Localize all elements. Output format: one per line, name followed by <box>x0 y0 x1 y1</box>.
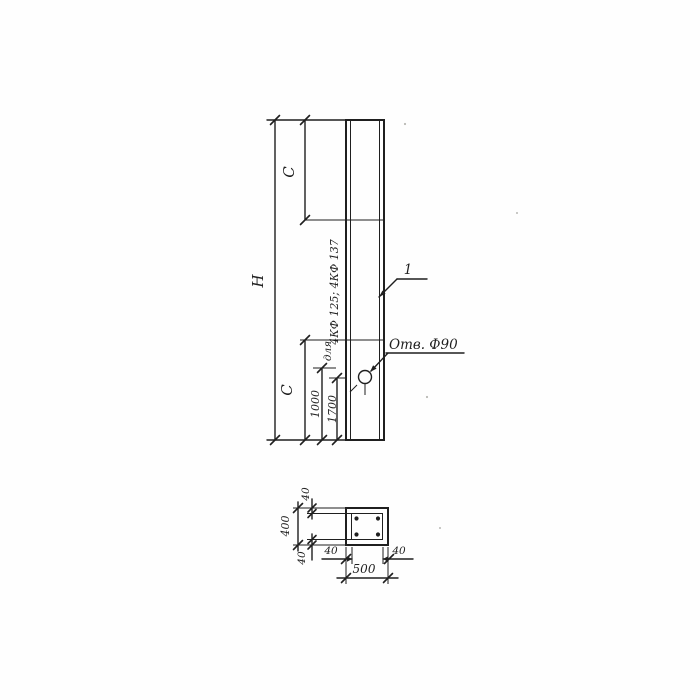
hole-circle <box>359 371 372 384</box>
hole-leader-tail <box>350 385 357 392</box>
rebar-dot <box>376 532 380 536</box>
rebar-dot <box>354 532 358 536</box>
technical-drawing-canvas: H C C 1000 1700 для 4КФ 125; 4КФ 137 <box>0 0 700 700</box>
scan-speck <box>439 527 441 529</box>
dim-1000-label: 1000 <box>309 390 322 418</box>
hole-callout-label: Отв. Ф90 <box>389 337 458 353</box>
section-cover-right-label: 40 <box>391 545 406 557</box>
part-callout-label: 1 <box>404 262 413 278</box>
section-height-label: 400 <box>279 516 292 538</box>
c-top-dimension-label: C <box>280 166 298 178</box>
rebar-dot <box>354 516 358 520</box>
dim-1700-label: 1700 <box>326 395 339 423</box>
c-bottom-dimension-label: C <box>278 384 296 396</box>
elevation-view: H C C 1000 1700 для 4КФ 125; 4КФ 137 <box>249 116 464 445</box>
section-cover-left-label: 40 <box>323 545 338 557</box>
applicability-series-label: 4КФ 125; 4КФ 137 <box>328 239 341 345</box>
dim-arrowhead <box>347 556 352 562</box>
height-dimension-label: H <box>249 274 267 289</box>
scan-speck <box>516 212 518 214</box>
section-cover-top-label: 40 <box>300 487 312 502</box>
section-width-label: 500 <box>353 562 376 576</box>
rebar-dot <box>376 516 380 520</box>
section-view: 400 40 40 40 40 500 <box>279 487 413 584</box>
section-cover-bottom-label: 40 <box>296 551 308 566</box>
dim-arrowhead <box>383 556 388 562</box>
scan-speck <box>426 396 428 398</box>
scan-speck <box>404 123 406 125</box>
